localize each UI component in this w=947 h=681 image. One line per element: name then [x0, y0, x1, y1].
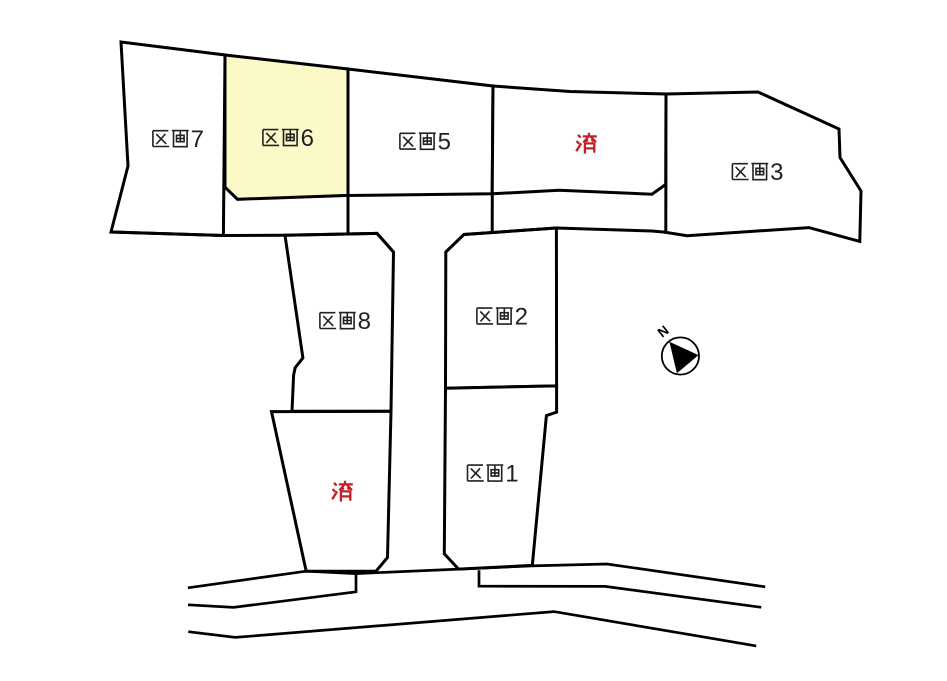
svg-text:7: 7	[191, 126, 204, 153]
svg-text:1: 1	[505, 460, 518, 487]
svg-text:5: 5	[438, 129, 451, 156]
svg-text:8: 8	[358, 308, 371, 335]
svg-text:2: 2	[515, 303, 528, 330]
svg-text:6: 6	[301, 125, 314, 152]
svg-text:3: 3	[770, 159, 783, 186]
